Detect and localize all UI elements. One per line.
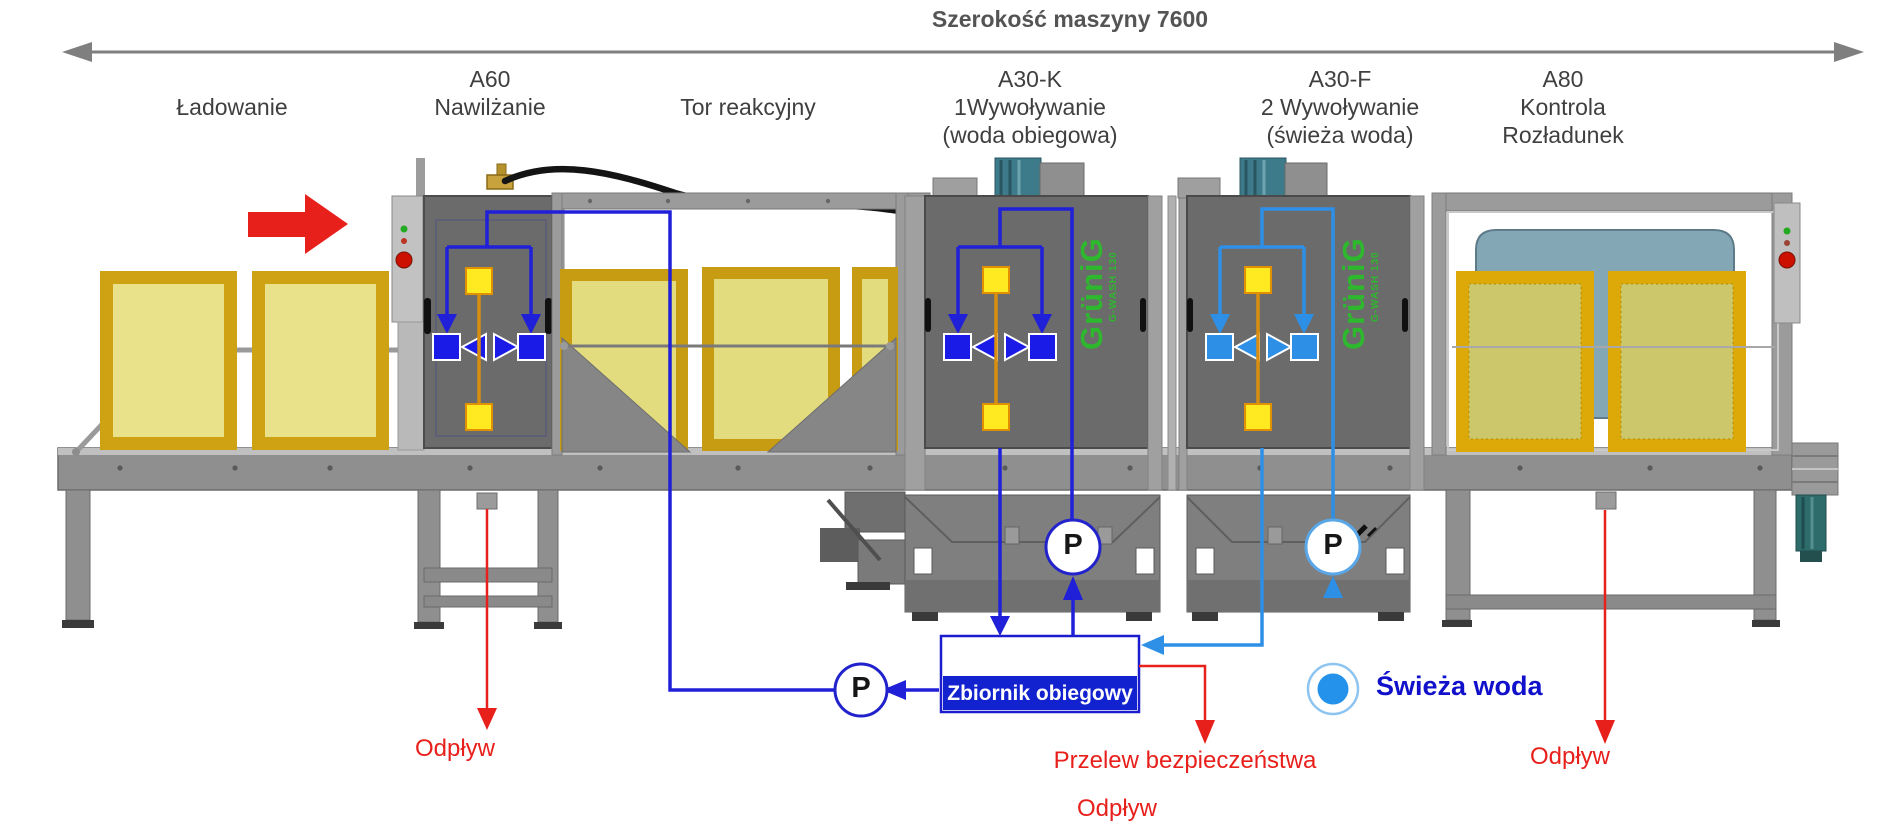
overflow-label: Przelew bezpieczeństwa [1054, 748, 1317, 774]
section-label-reaction: Tor reakcyjny [680, 94, 815, 120]
a30k-pump-label: P [1063, 529, 1082, 562]
fresh-water-legend-label: Świeża woda [1376, 673, 1543, 699]
reaction-track-section [552, 193, 930, 455]
circulation-tank-label: Zbiornik obiegowy [947, 681, 1133, 707]
model-label-a30f: G-WASH 130 [1370, 212, 1381, 322]
brand-logo-a30k: GrüniG [1074, 200, 1110, 350]
fresh-water-legend-icon [1308, 664, 1358, 714]
section-label-a30f-note: (świeża woda) [1267, 122, 1414, 148]
circulation-pump-label: P [851, 672, 870, 705]
dimension-label: Szerokość maszyny 7600 [932, 6, 1208, 32]
overflow-drain-label: Odpływ [1077, 796, 1157, 822]
section-label-a30k-note: (woda obiegowa) [942, 122, 1117, 148]
flow-direction-arrow-icon [248, 194, 348, 254]
dimension-arrow-line [62, 42, 1864, 62]
section-label-a80-name1: Kontrola [1520, 94, 1606, 120]
brand-logo-a30f: GrüniG [1336, 200, 1372, 350]
a80-section [1432, 193, 1838, 627]
a30f-pump-label: P [1323, 529, 1342, 562]
section-label-a60-code: A60 [470, 66, 511, 92]
section-label-a30k-name: 1Wywoływanie [954, 94, 1106, 120]
emergency-stop-button [396, 252, 412, 268]
section-label-a30f-name: 2 Wywoływanie [1261, 94, 1419, 120]
section-label-a80-name2: Rozładunek [1502, 122, 1623, 148]
section-label-a80-code: A80 [1543, 66, 1584, 92]
drain-label-a80: Odpływ [1530, 744, 1610, 770]
panel-small-light [1784, 240, 1790, 246]
emergency-stop-button [1779, 252, 1795, 268]
a30f-section [1178, 158, 1424, 621]
section-label-a30k-code: A30-K [998, 66, 1062, 92]
panel-green-light [401, 226, 408, 233]
under-structure [820, 492, 905, 590]
loading-screen-frames [100, 271, 389, 450]
panel-green-light [1784, 228, 1791, 235]
section-label-a60-name: Nawilżanie [434, 94, 545, 120]
model-label-a30k: G-WASH 130 [1108, 212, 1119, 322]
section-label-loading: Ładowanie [176, 94, 287, 120]
panel-small-light [401, 238, 407, 244]
machine-schematic: Szerokość maszyny 7600 Ładowanie A60 Naw… [0, 0, 1904, 839]
section-label-a30f-code: A30-F [1309, 66, 1372, 92]
drain-label-a60: Odpływ [415, 736, 495, 762]
